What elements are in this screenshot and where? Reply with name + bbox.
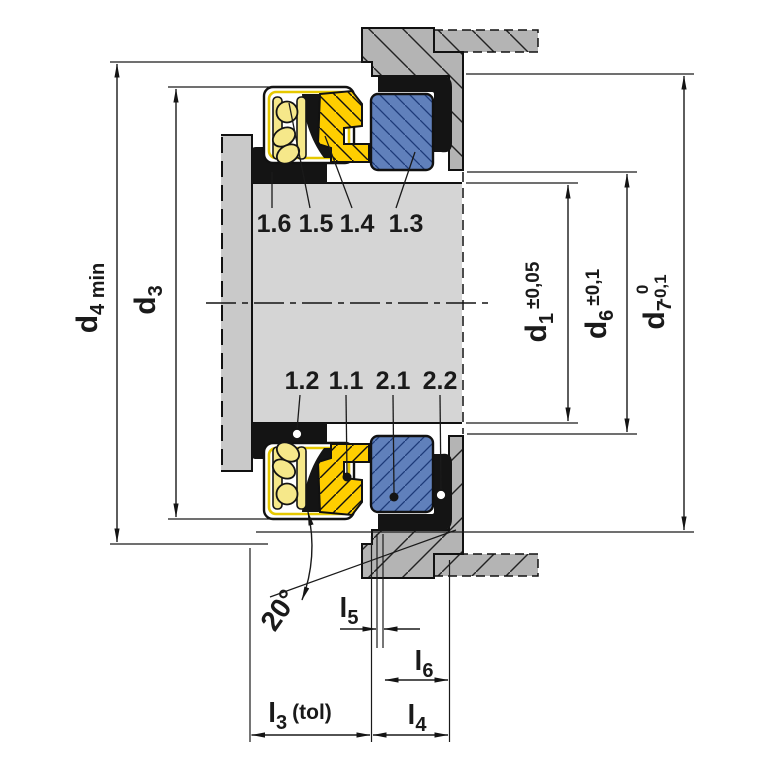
svg-text:d70-0,1: d70-0,1 — [633, 274, 676, 329]
svg-text:d3: d3 — [129, 285, 167, 314]
part-label-1-1: 1.1 — [329, 367, 364, 395]
part-label-2-2: 2.2 — [423, 367, 458, 395]
dimension-d6: d6±0,1 — [467, 172, 637, 434]
d1-label: d — [520, 324, 553, 342]
dimension-l5: l5 — [340, 592, 420, 629]
svg-text:l4: l4 — [408, 699, 428, 736]
d6-subscript: 6 — [596, 310, 618, 321]
l6-label: l — [415, 645, 423, 676]
svg-text:d6±0,1: d6±0,1 — [580, 268, 618, 339]
l3-subscript: 3 — [276, 712, 287, 734]
d1-subscript: 1 — [536, 313, 558, 324]
l5-subscript: 5 — [347, 607, 358, 629]
technical-drawing-page: d4 min d3 d1±0,05 d6±0,1 d70-0,1 — [0, 0, 768, 768]
part-label-1-6: 1.6 — [257, 210, 292, 238]
svg-text:d4 min: d4 min — [71, 263, 109, 334]
l4-subscript: 4 — [415, 714, 427, 736]
part-label-1-2: 1.2 — [285, 367, 320, 395]
d7-tolerance-upper: 0 — [633, 285, 652, 294]
d7-label: d — [638, 311, 671, 329]
d6-label: d — [580, 321, 613, 339]
l3-suffix: (tol) — [292, 701, 332, 724]
part-label-2-1: 2.1 — [376, 367, 411, 395]
l3-label: l — [268, 697, 276, 728]
l6-subscript: 6 — [422, 660, 433, 682]
dimension-l3: l3(tol) — [252, 697, 371, 735]
svg-text:l5: l5 — [340, 592, 359, 629]
angle-label: 20° — [254, 584, 304, 636]
spring-coil-1 — [277, 102, 298, 123]
housing-flange-tab — [434, 30, 538, 52]
callout-dot-2-1 — [390, 493, 399, 502]
d7-tolerance-lower: -0,1 — [651, 274, 670, 303]
dimension-l6: l6 — [385, 645, 448, 682]
callout-dot-2-2 — [436, 490, 446, 500]
svg-text:l6: l6 — [415, 645, 434, 682]
d6-tolerance: ±0,1 — [583, 268, 604, 305]
part-label-1-3: 1.3 — [389, 210, 424, 238]
l4-label: l — [408, 699, 416, 730]
svg-text:l3(tol): l3(tol) — [268, 697, 332, 734]
seal-cross-section-drawing: d4 min d3 d1±0,05 d6±0,1 d70-0,1 — [0, 0, 768, 768]
callout-dot-1-2 — [292, 429, 302, 439]
part-label-1-4: 1.4 — [340, 210, 375, 238]
d4-label: d — [71, 315, 104, 333]
d1-tolerance: ±0,05 — [523, 261, 544, 309]
d4-subscript: 4 min — [87, 263, 109, 315]
dimension-l4: l4 — [373, 699, 448, 736]
svg-text:d1±0,05: d1±0,05 — [520, 261, 558, 342]
part-label-1-5: 1.5 — [299, 210, 334, 238]
seal-assembly-top — [252, 28, 538, 183]
callout-dot-1-1 — [343, 473, 352, 482]
d3-subscript: 3 — [145, 285, 167, 296]
d3-label: d — [129, 296, 162, 314]
seat-ring — [371, 94, 433, 170]
l5-label: l — [340, 592, 348, 623]
